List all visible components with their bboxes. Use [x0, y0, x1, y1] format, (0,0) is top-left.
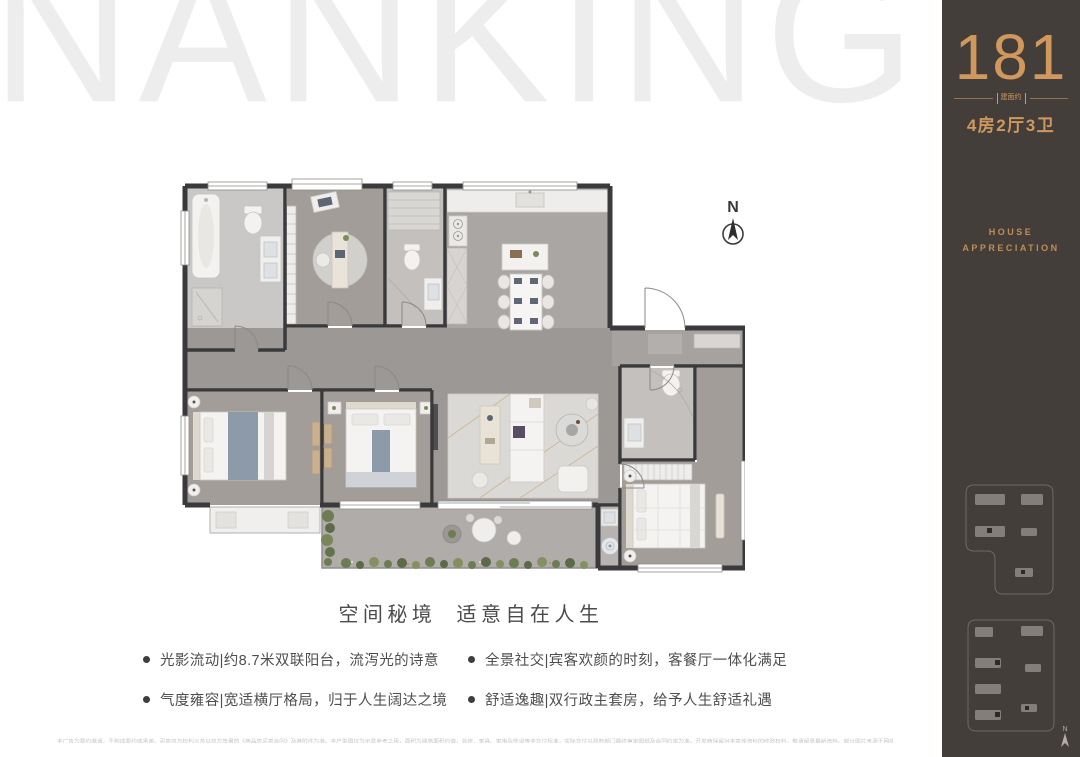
shoe-cabinet-icon — [694, 334, 740, 348]
bathtub-icon — [192, 194, 220, 278]
area-note-label: 建面约 — [997, 93, 1026, 104]
area-note-row: 建面约 — [942, 93, 1080, 104]
living-room-set — [433, 394, 598, 498]
bullet-icon — [468, 656, 475, 663]
feature-item: 气度雍容|宽适横厅格局，归于人生阔达之境 — [143, 689, 447, 710]
kitchen-counter-icon — [447, 190, 608, 212]
feature-text: 全景社交|宾客欢颜的时刻，客餐厅一体化满足 — [485, 653, 787, 669]
mini-compass-icon: N — [1058, 726, 1072, 752]
bullet-icon — [143, 696, 150, 703]
feature-item: 光影流动|约8.7米双联阳台，流泻光的诗意 — [143, 649, 439, 670]
building-footprints — [975, 626, 1043, 720]
site-keyplan-lower — [965, 618, 1057, 733]
legal-disclaimer: 本广告为要约邀请，不构成要约或承诺，买卖双方权利义务以双方签署的《商品房买卖合同… — [57, 737, 893, 744]
divider-line — [954, 98, 993, 99]
pantry-icon — [447, 248, 467, 324]
armchair-icon — [558, 466, 588, 492]
wardrobe-icon — [286, 206, 296, 324]
appreciation-word: APPRECIATION — [942, 240, 1080, 256]
feature-item: 舒适逸趣|双行政主套房，给予人生舒适礼遇 — [468, 689, 772, 710]
house-word: HOUSE — [942, 224, 1080, 240]
feature-text: 舒适逸趣|双行政主套房，给予人生舒适礼遇 — [485, 693, 772, 709]
bay-window-seat — [210, 507, 320, 533]
page-title: 空间秘境 适意自在人生 — [0, 598, 942, 627]
toilet-icon — [244, 206, 262, 234]
info-sidebar: 181 建面约 4房2厅3卫 HOUSE APPRECIATION — [942, 0, 1080, 757]
entry-door — [645, 288, 685, 328]
floor-plan: N — [180, 178, 745, 598]
feature-text: 气度雍容|宽适横厅格局，归于人生阔达之境 — [160, 693, 447, 709]
bullet-icon — [143, 656, 150, 663]
toilet-icon — [404, 244, 420, 270]
bullet-icon — [468, 696, 475, 703]
area-number: 181 — [942, 24, 1080, 91]
shower-icon — [192, 288, 222, 326]
building-footprints — [975, 494, 1043, 577]
feature-item: 全景社交|宾客欢颜的时刻，客餐厅一体化满足 — [468, 649, 787, 670]
poster-page: NANKING — [0, 0, 1080, 757]
cooktop-icon — [449, 216, 467, 246]
vanity-icon — [424, 278, 442, 310]
nanking-watermark: NANKING — [0, 0, 923, 132]
closet-icon — [388, 192, 440, 230]
svg-text:N: N — [727, 199, 739, 216]
unit-layout-label: 4房2厅3卫 — [942, 111, 1080, 136]
dining-table-icon — [498, 274, 554, 330]
site-keyplan-upper — [963, 482, 1059, 600]
kitchen-island-icon — [502, 244, 548, 270]
house-appreciation-label: HOUSE APPRECIATION — [942, 224, 1080, 256]
compass-icon: N — [723, 199, 743, 244]
mini-compass-label: N — [1058, 726, 1072, 734]
divider-line — [1030, 98, 1069, 99]
double-vanity-icon — [260, 236, 281, 282]
feature-text: 光影流动|约8.7米双联阳台，流泻光的诗意 — [160, 653, 439, 669]
door-mat — [648, 334, 682, 354]
